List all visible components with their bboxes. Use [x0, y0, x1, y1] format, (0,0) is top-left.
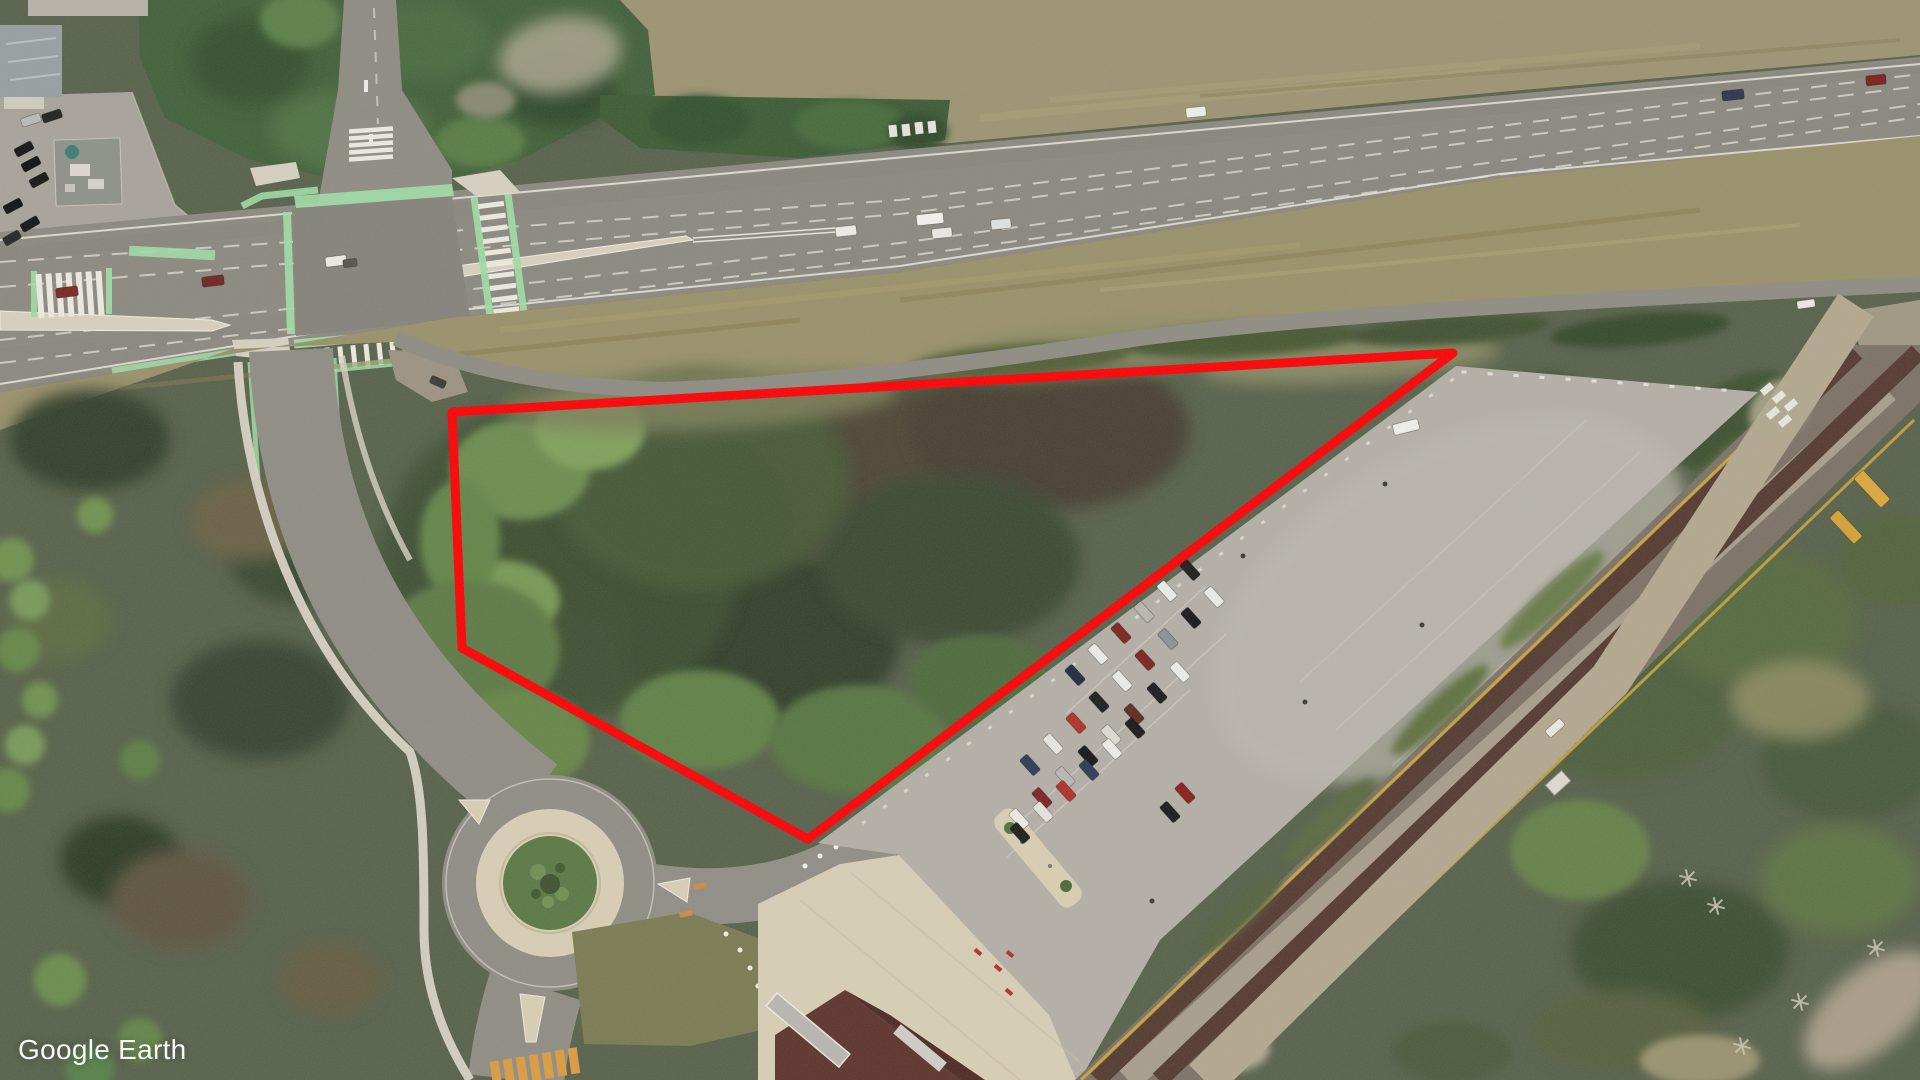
- google-earth-viewport[interactable]: GoogleEarth: [0, 0, 1920, 1080]
- watermark-earth: Earth: [118, 1034, 186, 1065]
- watermark-google: Google: [18, 1034, 110, 1065]
- satellite-imagery[interactable]: [0, 0, 1920, 1080]
- photo-grain-overlay: [0, 0, 1920, 1080]
- watermark: GoogleEarth: [18, 1034, 187, 1066]
